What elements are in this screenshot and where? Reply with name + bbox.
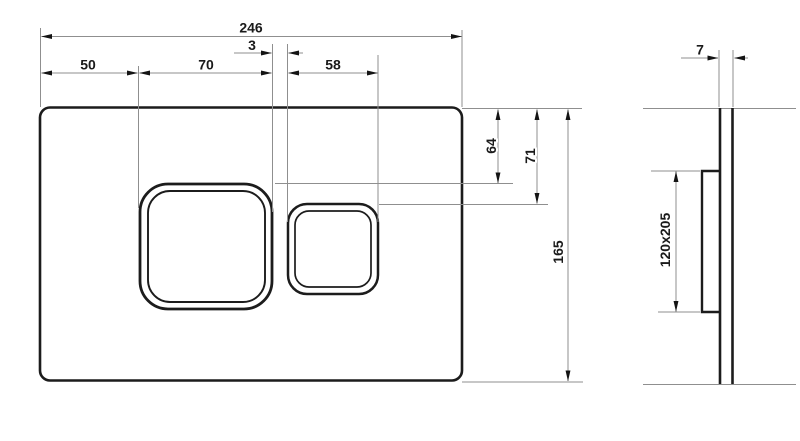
dim-frame-size-label: 120x205 (657, 213, 673, 268)
dim-total-width: 246 (42, 20, 462, 37)
small-button-outer-ring (288, 204, 378, 294)
technical-drawing-flush-plate: 246 3 50 70 58 64 7 (0, 0, 800, 441)
side-view: 7 120x205 (643, 42, 796, 385)
front-view: 246 3 50 70 58 64 7 (40, 20, 583, 383)
dim-left-offset-label: 50 (80, 57, 96, 73)
drawing-svg: 246 3 50 70 58 64 7 (0, 0, 800, 441)
dim-small-button-width-label: 58 (325, 57, 341, 73)
dim-large-button-top-offset: 64 (483, 110, 499, 184)
small-button-inner-ring (295, 211, 371, 287)
dim-large-button-top-offset-label: 64 (483, 138, 499, 154)
dim-button-gap-label: 3 (248, 37, 256, 53)
dim-frame-size: 120x205 (657, 172, 676, 312)
dim-left-offset: 50 (42, 57, 138, 74)
dim-large-button-width: 70 (140, 57, 272, 74)
dim-small-button-top-offset: 71 (522, 110, 538, 204)
dim-plate-thickness: 7 (681, 42, 748, 59)
dim-small-button-width: 58 (289, 57, 378, 74)
dim-plate-thickness-label: 7 (696, 42, 704, 58)
dim-total-height-label: 165 (550, 240, 566, 264)
mounting-frame-profile (702, 171, 720, 312)
dim-total-height: 165 (550, 110, 568, 382)
dim-button-gap: 3 (234, 37, 303, 53)
large-flush-button (140, 184, 272, 309)
dim-small-button-top-offset-label: 71 (522, 148, 538, 164)
plate-outline (40, 108, 462, 381)
large-button-outer-ring (140, 184, 272, 309)
small-flush-button (288, 204, 378, 294)
large-button-inner-ring (148, 191, 265, 302)
dim-total-width-label: 246 (239, 20, 263, 36)
dim-large-button-width-label: 70 (198, 57, 214, 73)
